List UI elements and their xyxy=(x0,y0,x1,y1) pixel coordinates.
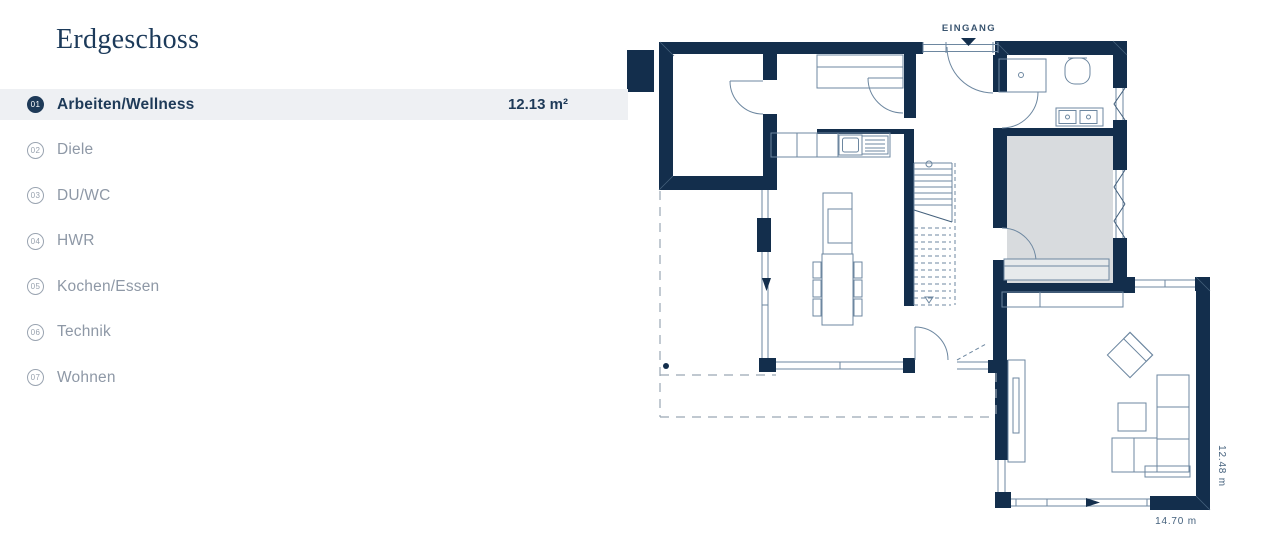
detached-wall-block xyxy=(627,50,654,92)
room-list-item[interactable]: 01 Arbeiten/Wellness 12.13 m² xyxy=(0,89,628,120)
entrance-door-arc xyxy=(947,47,993,93)
room-number-badge: 05 xyxy=(27,278,44,295)
living-room-furniture xyxy=(1002,292,1190,477)
height-dimension-label: 12.48 m xyxy=(1216,445,1227,487)
terrace-point xyxy=(663,363,669,369)
wall-hatches xyxy=(659,41,1210,510)
room-label: DU/WC xyxy=(57,187,111,205)
kitchen xyxy=(771,55,903,254)
entrance-label: EINGANG xyxy=(942,23,996,34)
room-label: HWR xyxy=(57,232,95,250)
sideboard xyxy=(1002,292,1123,307)
room-list-item[interactable]: 06 Technik xyxy=(0,317,628,348)
bathroom-fixtures xyxy=(999,58,1103,126)
room-number-badge: 02 xyxy=(27,142,44,159)
room-area-value: 12.13 m² xyxy=(508,96,628,113)
dining-set xyxy=(813,254,862,325)
doors xyxy=(730,47,1038,360)
room-number-badge: 07 xyxy=(27,369,44,386)
room-number-badge: 04 xyxy=(27,233,44,250)
width-dimension-label: 14.70 m xyxy=(1155,516,1197,527)
sofa xyxy=(1112,375,1189,472)
room-list-item[interactable]: 05 Kochen/Essen xyxy=(0,271,628,302)
page-title: Erdgeschoss xyxy=(56,24,199,56)
tv-board xyxy=(1008,360,1025,462)
sliding-door-arrow-icon xyxy=(762,278,771,291)
room-label: Wohnen xyxy=(57,369,116,387)
room-label: Technik xyxy=(57,323,111,341)
room-list-item[interactable]: 03 DU/WC xyxy=(0,180,628,211)
staircase xyxy=(914,161,955,305)
room-number-badge: 01 xyxy=(27,96,44,113)
room-label: Kochen/Essen xyxy=(57,278,159,296)
dining-table xyxy=(822,254,853,325)
armchair xyxy=(1107,332,1152,377)
room-list: 01 Arbeiten/Wellness 12.13 m² 02 Diele 0… xyxy=(0,89,628,408)
room-list-item[interactable]: 04 HWR xyxy=(0,226,628,257)
room-label: Arbeiten/Wellness xyxy=(57,96,195,114)
room-number-badge: 03 xyxy=(27,187,44,204)
windows xyxy=(762,42,1195,507)
toilet xyxy=(1065,58,1090,84)
room-list-item[interactable]: 02 Diele xyxy=(0,135,628,166)
room-label: Diele xyxy=(57,141,93,159)
room-list-item[interactable]: 07 Wohnen xyxy=(0,362,628,393)
kitchen-island xyxy=(823,193,852,254)
coffee-table xyxy=(1118,403,1146,431)
room-number-badge: 06 xyxy=(27,324,44,341)
wellness-furniture xyxy=(1004,259,1109,280)
